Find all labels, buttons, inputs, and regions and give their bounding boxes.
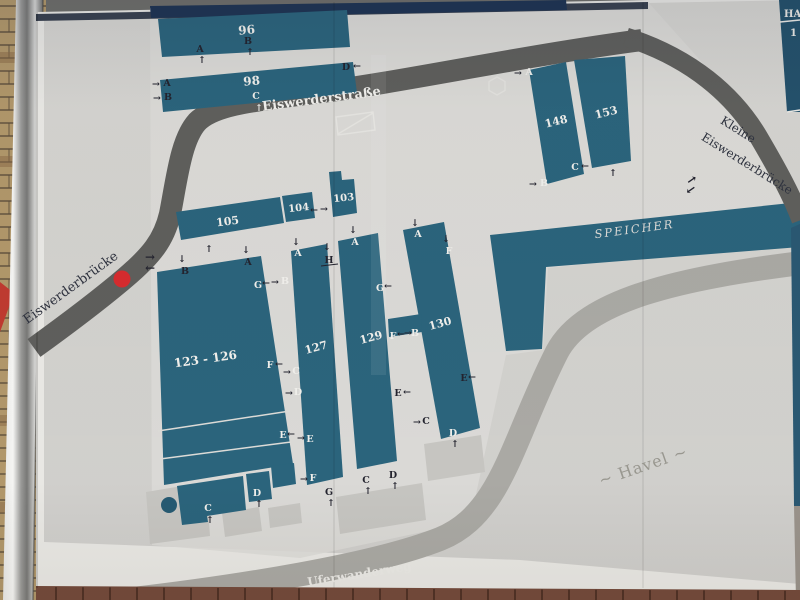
photo-vignette (0, 0, 800, 600)
photo-of-map-sign: 9698148153105104103123 - 126127129130A↑B… (0, 0, 800, 600)
eiswerder-site-map: 9698148153105104103123 - 126127129130A↑B… (0, 0, 800, 600)
